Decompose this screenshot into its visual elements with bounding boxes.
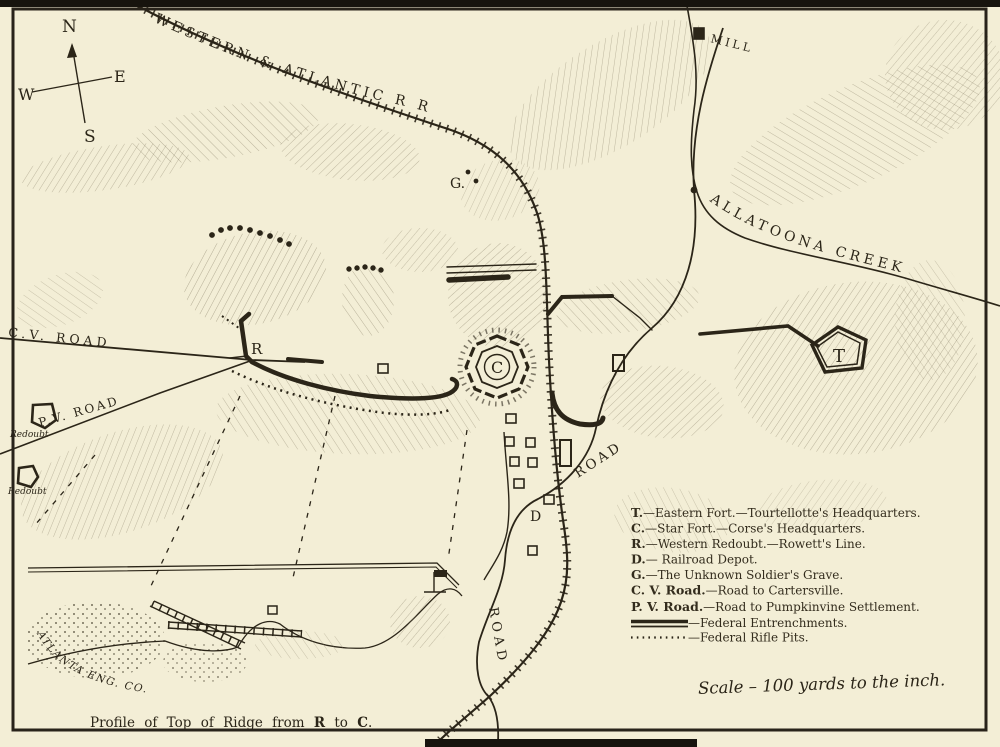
star-fort-label: C (491, 358, 503, 377)
depot-label: D (530, 509, 541, 525)
legend-item: P. V. Road.—Road to Pumpkinvine Settleme… (631, 599, 920, 614)
legend-desc: —The Unknown Soldier's Grave. (646, 568, 844, 582)
legend-item: C. V. Road.—Road to Cartersville. (631, 583, 843, 598)
entrenchment-north-of-fort (449, 277, 508, 280)
compass-south-label: S (84, 127, 96, 147)
legend-key: C. (631, 521, 645, 536)
legend-item: R.—Western Redoubt.—Rowett's Line. (631, 536, 866, 551)
legend-desc: — Railroad Depot. (646, 553, 758, 567)
hill (382, 228, 458, 272)
scan-edge-bottom (425, 739, 697, 747)
road-junction-dot (691, 187, 698, 194)
legend-key: R. (631, 536, 646, 551)
legend-item: C.—Star Fort.—Corse's Headquarters. (631, 521, 865, 536)
legend-rifle-pits-label: —Federal Rifle Pits. (688, 631, 809, 645)
mill-icon (694, 28, 704, 39)
legend-item: T.—Eastern Fort.—Tourtellotte's Headquar… (631, 505, 921, 520)
compass-west-label: W (18, 85, 35, 104)
legend-key: T. (631, 505, 643, 520)
eastern-fort-label: T (833, 346, 845, 367)
profile-hill-shading (390, 596, 450, 648)
legend-desc: —Road to Cartersville. (706, 584, 844, 598)
scanned-map-page: N E W S WESTERN & ATLANTIC R R ALLATOONA… (0, 0, 1000, 747)
legend-key: D. (631, 552, 646, 567)
legend-key: P. V. Road. (631, 599, 703, 614)
grave-label: G. (450, 176, 465, 192)
legend-key: C. V. Road. (631, 583, 706, 598)
legend-desc: —Star Fort.—Corse's Headquarters. (645, 522, 865, 536)
legend-item: D.— Railroad Depot. (631, 552, 758, 567)
legend-desc: —Western Redoubt.—Rowett's Line. (646, 537, 866, 551)
compass-east-label: E (114, 67, 126, 86)
hill (342, 264, 394, 336)
hill (885, 20, 1000, 130)
legend-desc: —Eastern Fort.—Tourtellotte's Headquarte… (643, 506, 920, 520)
legend-desc: —Road to Pumpkinvine Settlement. (703, 600, 920, 614)
scan-edge-top (0, 0, 1000, 7)
legend-entrenchments-label: —Federal Entrenchments. (688, 616, 847, 630)
legend-key: G. (631, 567, 646, 582)
allatoona-map: N E W S WESTERN & ATLANTIC R R ALLATOONA… (0, 0, 1000, 747)
legend-item: G.—The Unknown Soldier's Grave. (631, 567, 843, 582)
compass-north-label: N (62, 17, 77, 37)
redoubt-label-1: Redoubt (9, 430, 49, 440)
western-redoubt-label: R (251, 340, 263, 358)
